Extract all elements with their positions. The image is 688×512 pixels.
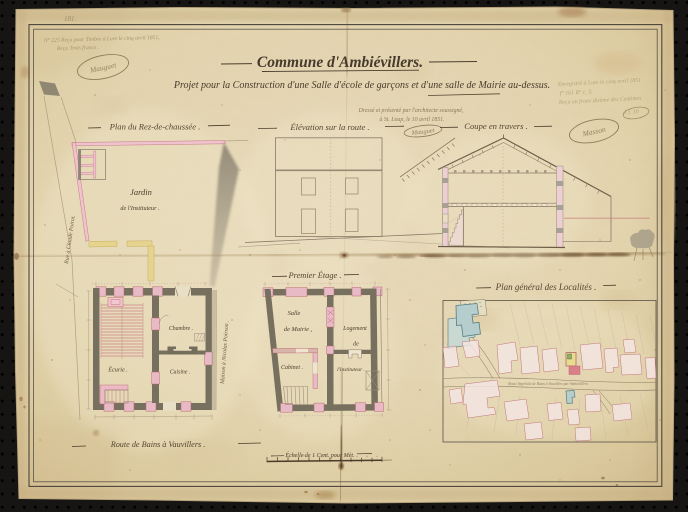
svg-text:de l'Instituteur .: de l'Instituteur . <box>120 205 159 212</box>
svg-text:Écurie .: Écurie . <box>107 366 128 374</box>
svg-text:à St. Loup, le 10 avril 1851.: à St. Loup, le 10 avril 1851. <box>380 117 445 123</box>
svg-text:Chambre .: Chambre . <box>169 326 193 332</box>
svg-text:Premier Étage .: Premier Étage . <box>288 270 342 280</box>
svg-text:Jardin: Jardin <box>130 187 152 197</box>
svg-text:181.: 181. <box>64 15 77 23</box>
svg-text:Logement: Logement <box>342 326 367 332</box>
svg-text:Plan général des Localités .: Plan général des Localités . <box>495 282 597 292</box>
svg-text:Élévation sur la route .: Élévation sur la route . <box>289 122 369 132</box>
svg-text:de: de <box>353 342 359 348</box>
svg-text:Route de Bains à Vauvillers .: Route de Bains à Vauvillers . <box>110 440 206 449</box>
svg-text:Plan du Rez-de-chaussée .: Plan du Rez-de-chaussée . <box>109 122 201 132</box>
svg-text:l'Instituteur .: l'Instituteur . <box>337 367 365 373</box>
svg-text:Cabinet .: Cabinet . <box>281 365 303 371</box>
svg-text:Reçu Trois francs .: Reçu Trois francs . <box>56 44 99 52</box>
svg-text:Route Impériale de Bains à Vau: Route Impériale de Bains à Vauvillers pa… <box>507 382 588 386</box>
svg-text:Cuisine .: Cuisine . <box>170 370 191 376</box>
svg-text:Coupe en travers .: Coupe en travers . <box>464 121 528 131</box>
svg-text:1 f. 10: 1 f. 10 <box>624 108 639 116</box>
svg-text:Commune d'Ambiévillers.: Commune d'Ambiévillers. <box>257 54 423 71</box>
svg-text:Projet pour la Construction d': Projet pour la Construction d'une Salle … <box>173 80 550 91</box>
svg-text:Salle: Salle <box>288 310 301 317</box>
svg-text:de Mairie ,: de Mairie , <box>284 326 313 333</box>
svg-text:Dressé et présenté par l'archi: Dressé et présenté par l'architecte sous… <box>358 108 464 114</box>
